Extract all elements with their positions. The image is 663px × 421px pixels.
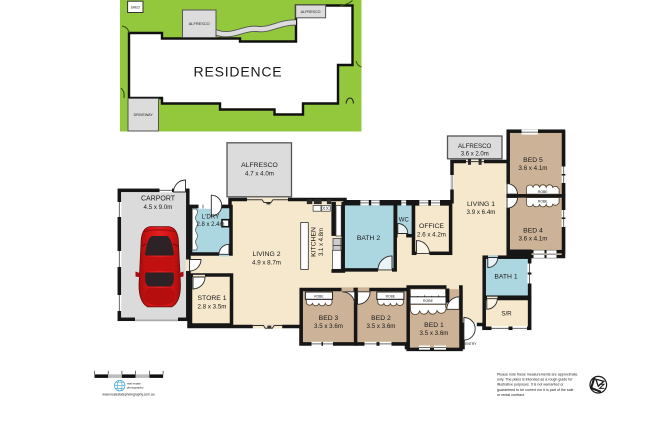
svg-text:illustrative purposes. It is n: illustrative purposes. It is not warrant… xyxy=(497,383,564,387)
svg-text:BED 5: BED 5 xyxy=(523,157,543,164)
svg-text:ROBE: ROBE xyxy=(538,190,548,194)
svg-text:3.5 x 3.6m: 3.5 x 3.6m xyxy=(367,323,396,330)
svg-text:LIVING 2: LIVING 2 xyxy=(253,251,281,258)
svg-text:BED 4: BED 4 xyxy=(523,228,543,235)
svg-text:ALFRESCO: ALFRESCO xyxy=(189,21,210,26)
svg-text:ROBE: ROBE xyxy=(386,294,396,298)
svg-text:BATH 2: BATH 2 xyxy=(357,235,381,242)
svg-text:photography: photography xyxy=(127,386,144,390)
svg-text:ROBE: ROBE xyxy=(314,294,324,298)
svg-text:ALFRESCO: ALFRESCO xyxy=(458,143,492,150)
svg-text:BATH 1: BATH 1 xyxy=(494,274,518,281)
svg-text:LIVING 1: LIVING 1 xyxy=(467,201,495,208)
svg-text:4.9 x 8.7m: 4.9 x 8.7m xyxy=(252,260,281,267)
svg-text:guaranteed to be correct nor i: guaranteed to be correct nor it is part … xyxy=(497,388,574,392)
svg-text:3.6 x 4.1m: 3.6 x 4.1m xyxy=(519,165,548,172)
svg-text:ALFRESCO: ALFRESCO xyxy=(241,162,278,169)
svg-text:Please note these measurements: Please note these measurements are appro… xyxy=(497,373,578,377)
svg-text:3.5 x 3.6m: 3.5 x 3.6m xyxy=(420,330,449,337)
svg-text:4.7 x 4.0m: 4.7 x 4.0m xyxy=(245,170,274,177)
svg-text:3.1 x 4.8m: 3.1 x 4.8m xyxy=(319,228,325,256)
svg-text:3.6 x 2.0m: 3.6 x 2.0m xyxy=(461,152,489,158)
svg-text:S/R: S/R xyxy=(501,311,512,318)
svg-text:2.6 x 4.2m: 2.6 x 4.2m xyxy=(417,232,446,239)
svg-text:ALFRESCO: ALFRESCO xyxy=(301,10,321,14)
svg-text:WC: WC xyxy=(399,218,410,224)
svg-text:2.8 x 2.4m: 2.8 x 2.4m xyxy=(196,222,224,228)
svg-text:L'DRY: L'DRY xyxy=(202,214,220,221)
svg-text:3.9 x 6.4m: 3.9 x 6.4m xyxy=(467,209,496,216)
svg-text:STORE 1: STORE 1 xyxy=(198,295,227,302)
svg-text:SHED: SHED xyxy=(131,5,141,9)
svg-text:or rental contract.: or rental contract. xyxy=(497,393,525,397)
svg-text:CARPORT: CARPORT xyxy=(141,196,176,203)
svg-text:BED 1: BED 1 xyxy=(424,322,444,329)
svg-text:BED 2: BED 2 xyxy=(371,315,391,322)
svg-text:RESIDENCE: RESIDENCE xyxy=(194,64,283,80)
svg-text:www.realestatephotography.com.: www.realestatephotography.com.au xyxy=(102,393,154,397)
svg-text:KITCHEN: KITCHEN xyxy=(311,227,318,257)
svg-text:2.8 x 3.5m: 2.8 x 3.5m xyxy=(198,304,227,311)
svg-text:BED 3: BED 3 xyxy=(319,315,339,322)
svg-text:ENTRY: ENTRY xyxy=(465,342,477,346)
svg-text:ROBE: ROBE xyxy=(538,200,548,204)
svg-text:only. The plans is intended as: only. The plans is intended as a rough g… xyxy=(497,378,573,382)
svg-text:ROBE: ROBE xyxy=(423,299,434,303)
svg-text:OFFICE: OFFICE xyxy=(419,223,444,230)
svg-text:4.5 x 9.0m: 4.5 x 9.0m xyxy=(144,204,173,211)
svg-text:DRIVEWAY: DRIVEWAY xyxy=(134,113,154,117)
svg-text:3.5 x 3.6m: 3.5 x 3.6m xyxy=(314,323,343,330)
svg-text:3.6 x 4.1m: 3.6 x 4.1m xyxy=(519,236,548,243)
